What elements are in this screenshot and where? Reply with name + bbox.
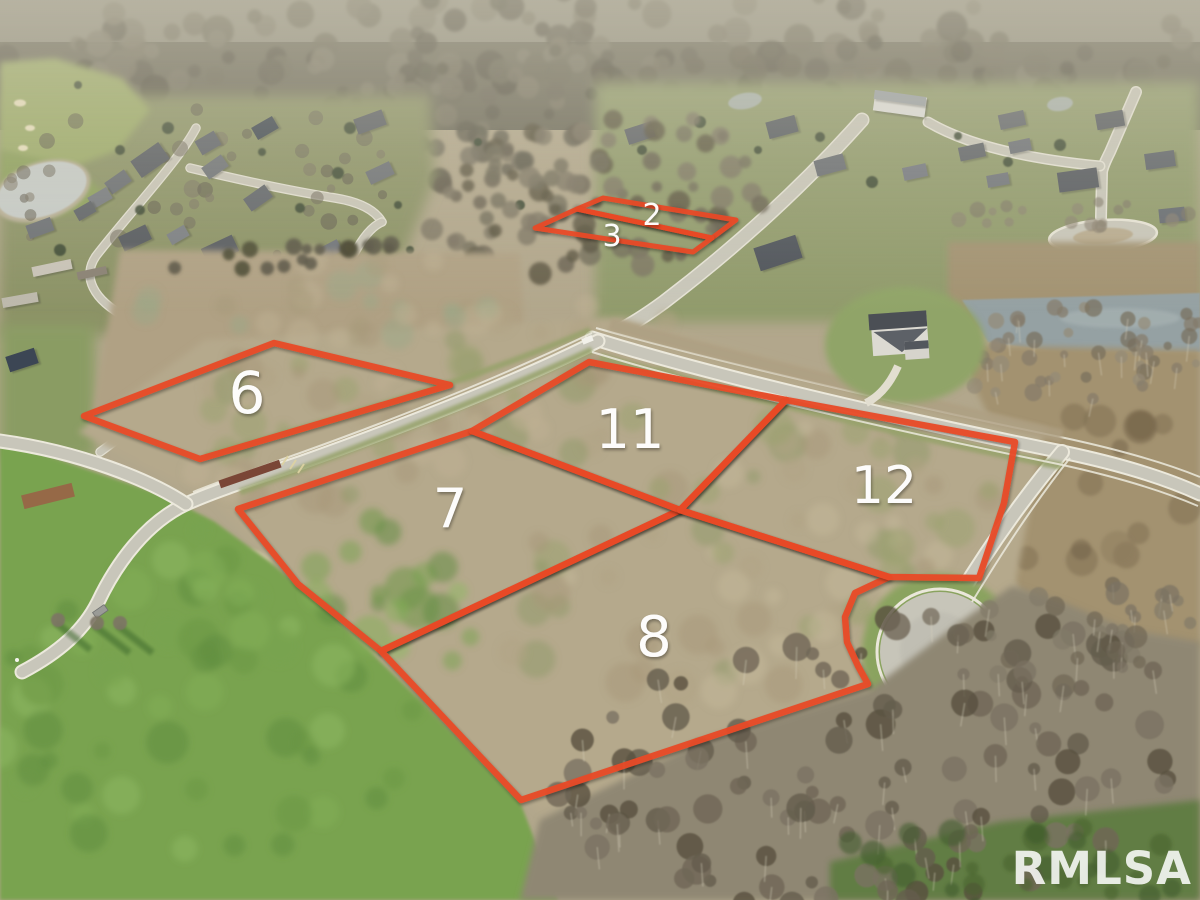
lot-label-3: 3 [602, 219, 621, 254]
lot-label-11: 11 [596, 398, 665, 461]
lot-label-7: 7 [433, 477, 467, 540]
lot-label-8: 8 [636, 605, 672, 670]
aerial-photo-canvas: 236781112 RMLSA [0, 0, 1200, 900]
lot-label-12: 12 [851, 456, 917, 516]
lot-label-2: 2 [642, 198, 661, 233]
aerial-lot-photo: 236781112 RMLSA [0, 0, 1200, 900]
watermark-rmlsa: RMLSA [1012, 842, 1192, 895]
lot-label-6: 6 [229, 359, 266, 427]
